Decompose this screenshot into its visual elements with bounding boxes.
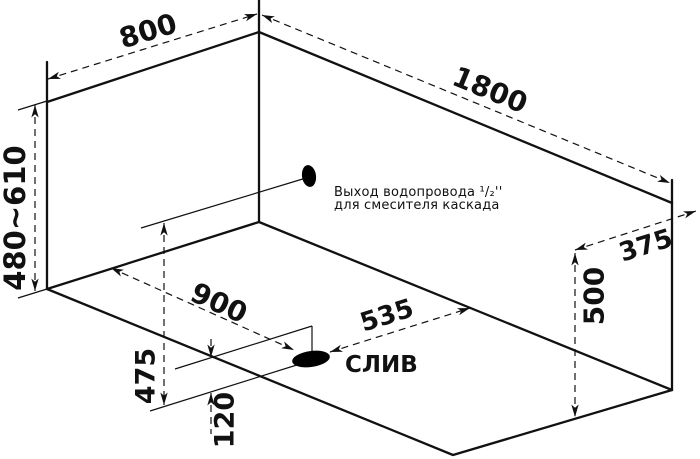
outlet-note-line2: для смесителя каскада [334,198,500,213]
dim-line-1800 [262,15,670,183]
top-back-edges [47,32,672,203]
dim-label-535: 535 [357,294,418,339]
dim-label-375: 375 [616,224,677,269]
bathtub-dimension-diagram: 800 1800 480~610 375 500 900 535 475 120… [0,0,700,459]
water-outlet-hole [301,164,318,188]
extension-tick-top-left [18,101,47,110]
dim-label-480-610: 480~610 [0,145,32,290]
dim-label-120: 120 [210,392,241,448]
outlet-leader-line [141,178,306,228]
dim-label-1800: 1800 [448,60,533,120]
drain-upper-extension-line [175,326,312,369]
dim-label-475: 475 [131,348,162,404]
dim-label-900: 900 [186,276,253,330]
drain-label: СЛИВ [345,352,418,378]
dim-label-800: 800 [115,7,181,56]
technical-drawing: 800 1800 480~610 375 500 900 535 475 120… [0,0,700,459]
drain-hole [291,348,331,369]
dim-label-500: 500 [578,267,611,325]
